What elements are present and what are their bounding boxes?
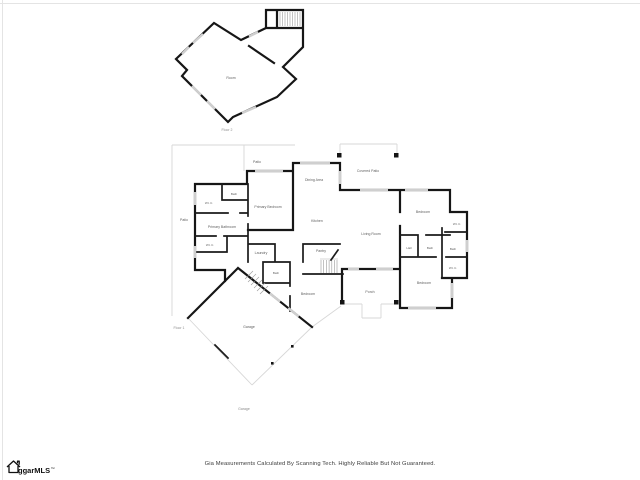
floor1-thin-lines <box>172 144 397 385</box>
floor2-stairs-hatch <box>280 12 300 26</box>
room-label-bedroom-right-top: Bedroom <box>416 210 430 214</box>
floor2-walls <box>176 10 303 122</box>
room-label-garage: Garage <box>243 325 255 329</box>
room-label-wic-suite-1: W.I.C. <box>205 201 213 205</box>
mls-logo-text: ggarMLS <box>18 467 50 475</box>
floor-plan-drawing: Room Floor 2 Patio Patio Dining Are <box>0 0 640 480</box>
room-label-bedroom-center: Bedroom <box>301 292 315 296</box>
floor2-plan: Room Floor 2 <box>176 10 303 132</box>
room-label-wic-right-top: W.I.C. <box>453 222 461 226</box>
room-label-bedroom-right-bottom: Bedroom <box>417 281 431 285</box>
room-label-living-room: Living Room <box>361 232 381 236</box>
room-label-wic-right-bottom: W.I.C. <box>449 266 457 270</box>
room-label-dining-area: Dining Area <box>305 178 323 182</box>
room-label-porch: Porch <box>365 290 374 294</box>
room-label-laundry: Laundry <box>255 251 268 255</box>
room-label-bath-center: Bath <box>273 271 280 275</box>
page-border-lines <box>0 0 640 480</box>
room-label-kitchen: Kitchen <box>311 219 323 223</box>
room-label-bath-right-2: Bath <box>450 247 457 251</box>
room-label-patio-left: Patio <box>180 218 188 222</box>
foyer-stairs-hatch <box>321 260 337 273</box>
room-label-bath-suite: Bath <box>231 192 238 196</box>
disclaimer-text: Gia Measurements Calculated By Scanning … <box>0 461 640 467</box>
room-label-primary-bedroom: Primary Bedroom <box>254 205 281 209</box>
room-label-floor2-room: Room <box>226 76 235 80</box>
room-label-wic-suite-2: W.I.C. <box>206 243 214 247</box>
room-label-covered-patio: Covered Patio <box>357 169 379 173</box>
section-label-floor2: Floor 2 <box>222 128 233 132</box>
floor1-exterior-walls <box>188 163 467 327</box>
floor-plan-page: Room Floor 2 Patio Patio Dining Are <box>0 0 640 480</box>
garage-plan: Garage Garage <box>238 325 255 411</box>
mls-logo: ggarMLS ™ <box>5 458 55 474</box>
floor1-plan: Patio Patio Dining Area Covered Patio Ki… <box>172 144 467 385</box>
room-label-primary-bathroom: Primary Bathroom <box>208 225 236 229</box>
section-label-floor1: Floor 1 <box>174 326 185 330</box>
floor1-windows <box>195 163 467 316</box>
mls-logo-trademark: ™ <box>51 467 55 471</box>
room-label-bath-right-1: Bath <box>427 246 434 250</box>
floor2-windows <box>182 32 258 113</box>
room-label-hall: Hall <box>406 246 412 250</box>
section-label-garage: Garage <box>238 407 250 411</box>
room-label-patio-top: Patio <box>253 160 261 164</box>
room-label-pantry: Pantry <box>316 249 326 253</box>
